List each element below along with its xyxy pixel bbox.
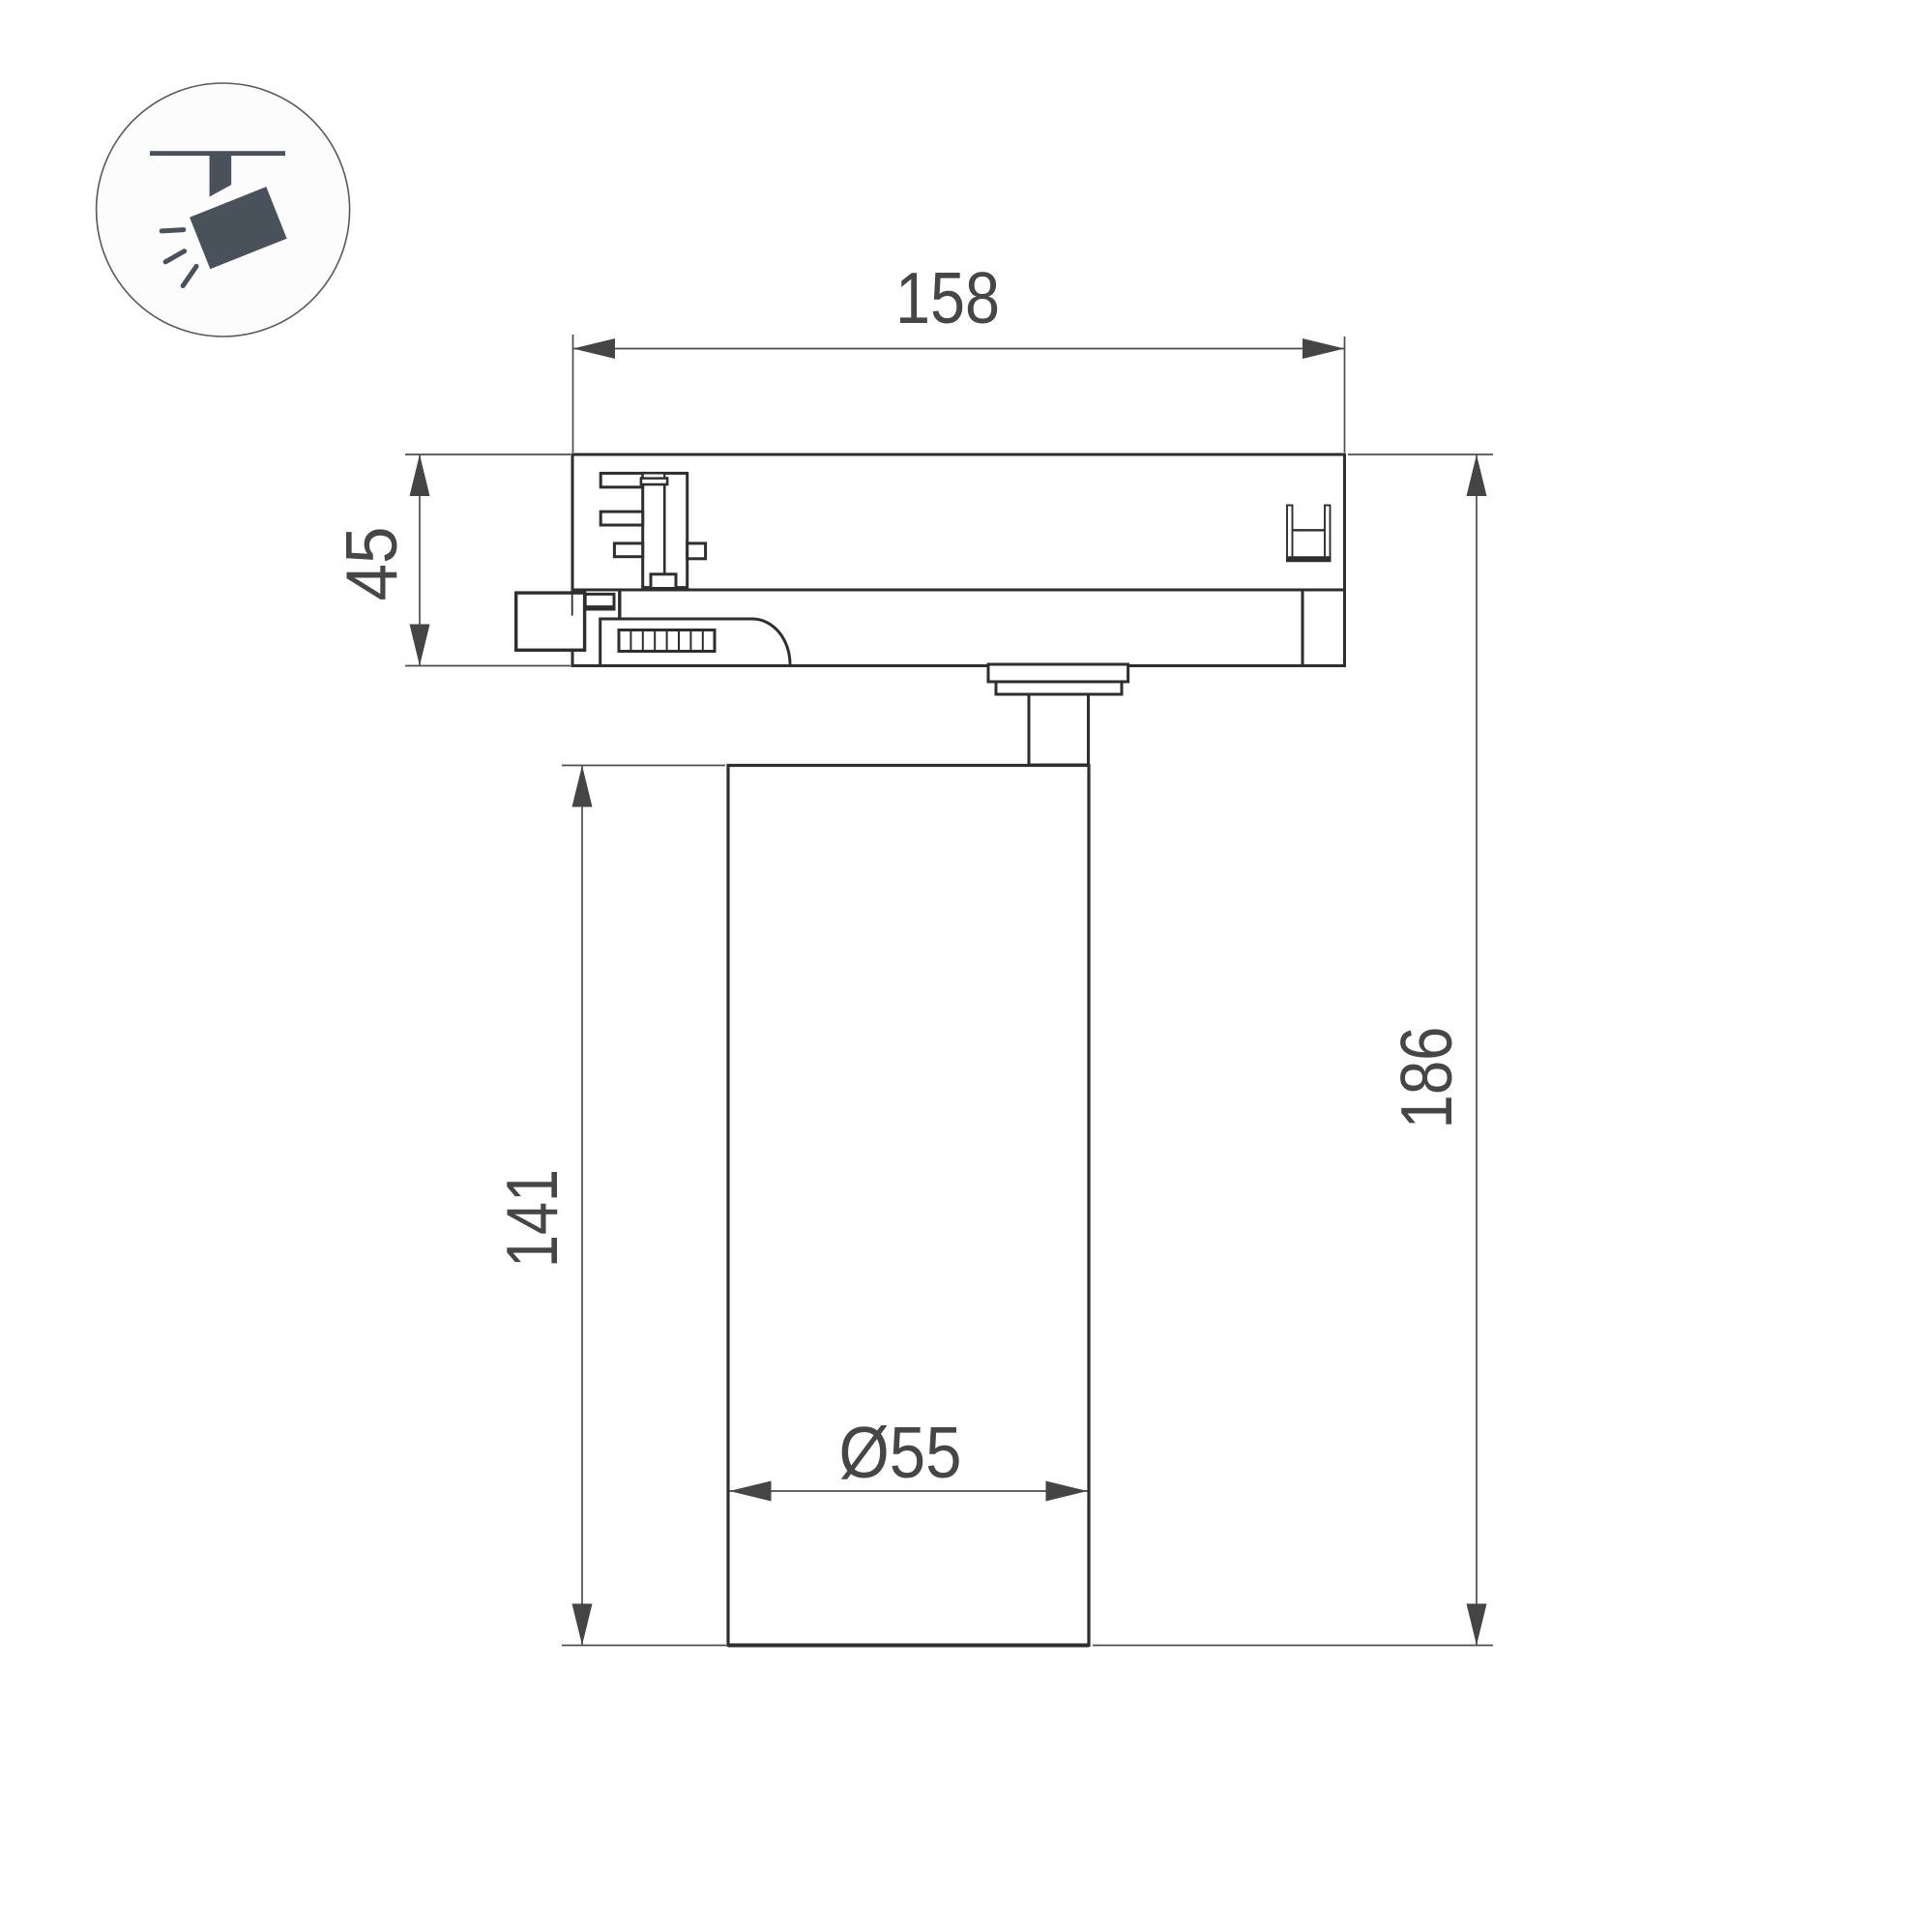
svg-text:186: 186 xyxy=(1386,1027,1467,1129)
svg-text:158: 158 xyxy=(895,257,1000,338)
svg-text:141: 141 xyxy=(491,1169,572,1268)
svg-text:Ø55: Ø55 xyxy=(839,1412,962,1493)
svg-text:45: 45 xyxy=(331,527,412,601)
